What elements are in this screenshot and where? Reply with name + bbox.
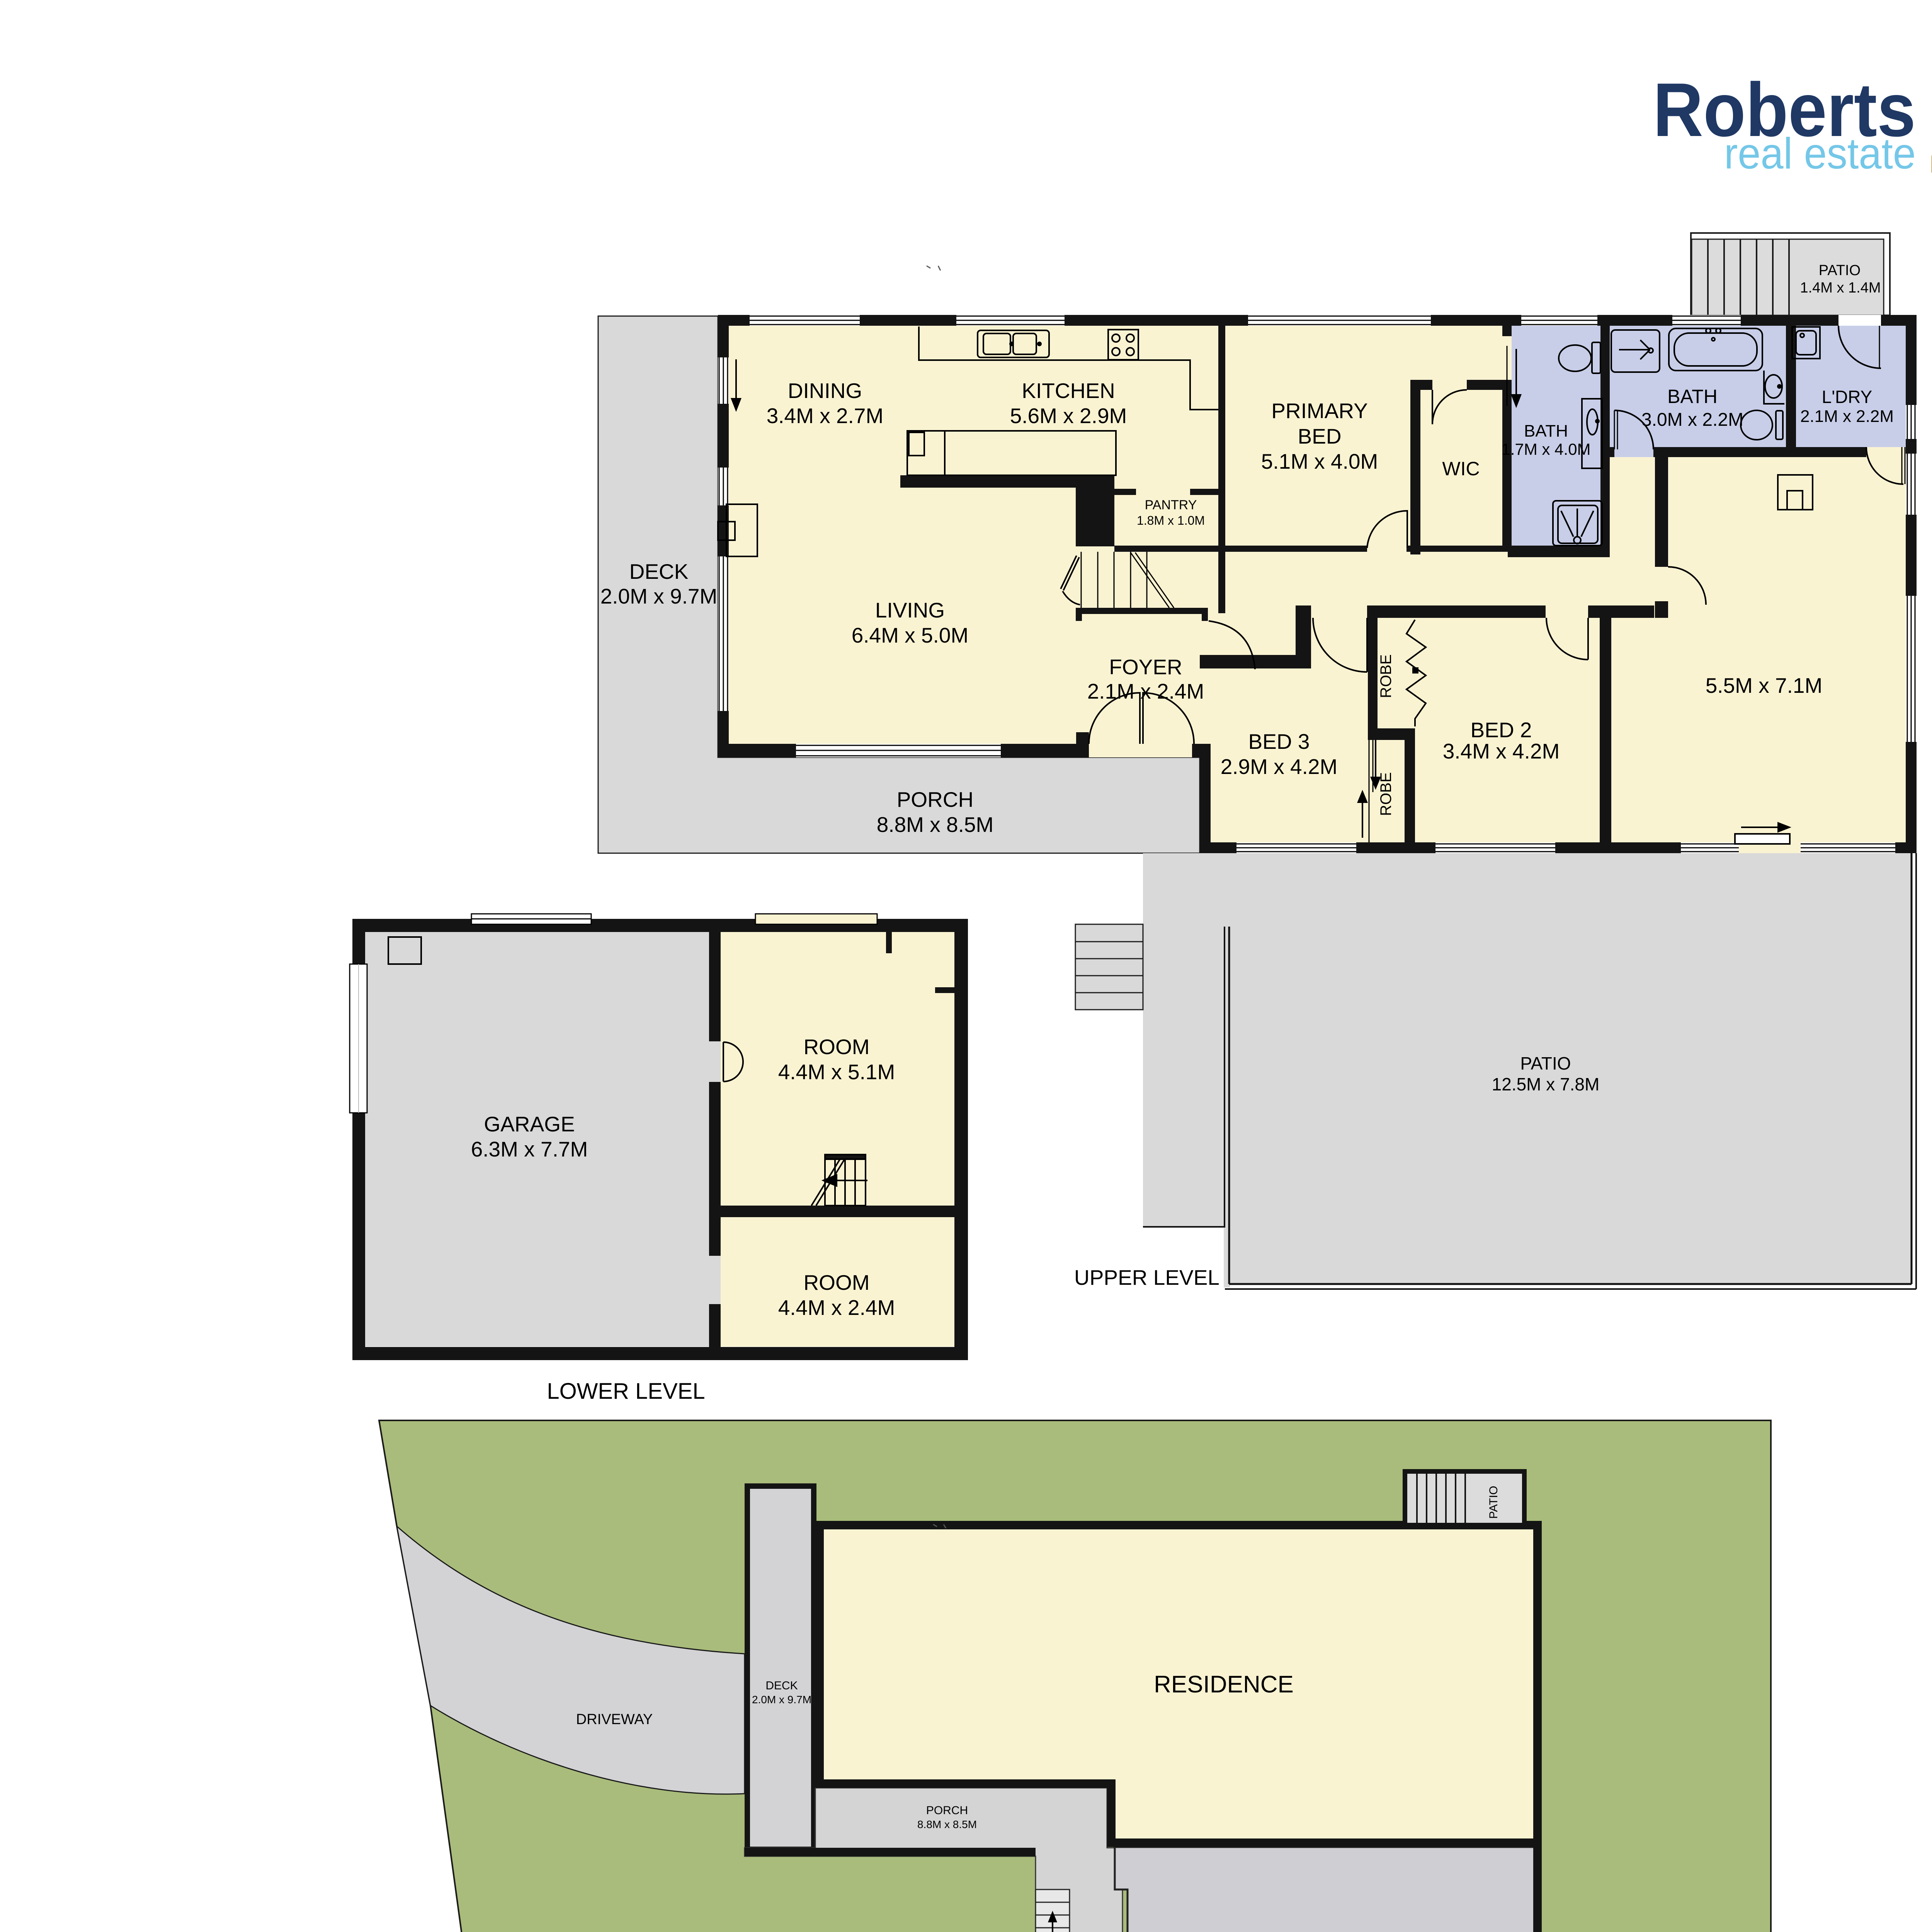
- svg-text:2.0M x 9.7M: 2.0M x 9.7M: [600, 584, 718, 608]
- svg-text:8.8M x 8.5M: 8.8M x 8.5M: [917, 1818, 977, 1830]
- svg-text:DINING: DINING: [788, 379, 862, 403]
- svg-text:2.9M x 4.2M: 2.9M x 4.2M: [1221, 755, 1338, 779]
- svg-text:PORCH: PORCH: [926, 1804, 968, 1817]
- svg-text:DRIVEWAY: DRIVEWAY: [576, 1711, 653, 1728]
- svg-text:160: 160: [1927, 63, 1932, 195]
- svg-text:DECK: DECK: [765, 1679, 798, 1692]
- svg-text:ROBE: ROBE: [1378, 654, 1395, 698]
- svg-text:2.1M x 2.2M: 2.1M x 2.2M: [1800, 407, 1894, 426]
- svg-text:L'DRY: L'DRY: [1822, 387, 1872, 407]
- svg-text:5.5M x 7.1M: 5.5M x 7.1M: [1706, 673, 1823, 697]
- svg-text:PATIO: PATIO: [1819, 262, 1861, 279]
- svg-text:LOWER LEVEL: LOWER LEVEL: [547, 1379, 705, 1404]
- svg-text:FOYER: FOYER: [1109, 655, 1182, 679]
- svg-text:3.4M x 2.7M: 3.4M x 2.7M: [767, 404, 884, 428]
- svg-text:4.4M x 2.4M: 4.4M x 2.4M: [778, 1296, 895, 1320]
- svg-text:BED 2: BED 2: [1471, 718, 1532, 742]
- svg-text:WIC: WIC: [1442, 458, 1480, 480]
- svg-text:RESIDENCE: RESIDENCE: [1154, 1671, 1294, 1698]
- svg-text:6.4M x 5.0M: 6.4M x 5.0M: [852, 623, 969, 647]
- svg-text:3.4M x 4.2M: 3.4M x 4.2M: [1443, 739, 1560, 763]
- svg-text:ROOM: ROOM: [803, 1270, 869, 1294]
- svg-text:5.1M x 4.0M: 5.1M x 4.0M: [1261, 449, 1378, 473]
- svg-text:PANTRY: PANTRY: [1145, 498, 1197, 512]
- svg-text:UPPER LEVEL: UPPER LEVEL: [1074, 1265, 1219, 1289]
- svg-text:12.5M x 7.8M: 12.5M x 7.8M: [1492, 1074, 1600, 1094]
- svg-text:1.8M x 1.0M: 1.8M x 1.0M: [1137, 514, 1205, 527]
- svg-text:1.4M x 1.4M: 1.4M x 1.4M: [1800, 280, 1881, 296]
- svg-text:GARAGE: GARAGE: [484, 1112, 575, 1136]
- svg-text:4.4M x 5.1M: 4.4M x 5.1M: [778, 1060, 895, 1084]
- svg-text:real estate: real estate: [1724, 129, 1916, 178]
- svg-text:5.6M x 2.9M: 5.6M x 2.9M: [1010, 404, 1127, 428]
- svg-text:1.7M x 4.0M: 1.7M x 4.0M: [1501, 440, 1590, 458]
- svg-text:ROBE: ROBE: [1378, 772, 1395, 816]
- svg-text:DECK: DECK: [629, 560, 689, 583]
- svg-text:BED 3: BED 3: [1248, 730, 1310, 753]
- svg-text:8.8M x 8.5M: 8.8M x 8.5M: [877, 813, 994, 837]
- svg-text:PATIO: PATIO: [1487, 1486, 1500, 1519]
- svg-text:2.1M x 2.4M: 2.1M x 2.4M: [1087, 679, 1204, 703]
- svg-text:PORCH: PORCH: [897, 787, 974, 811]
- svg-text:3.0M x 2.2M: 3.0M x 2.2M: [1641, 410, 1743, 430]
- svg-text:BATH: BATH: [1524, 422, 1568, 440]
- svg-text:BATH: BATH: [1667, 386, 1718, 407]
- svg-text:PRIMARY: PRIMARY: [1271, 399, 1368, 423]
- svg-text:PATIO: PATIO: [1520, 1053, 1571, 1073]
- svg-text:2.0M x 9.7M: 2.0M x 9.7M: [752, 1694, 811, 1706]
- svg-text:KITCHEN: KITCHEN: [1022, 379, 1115, 403]
- svg-text:LIVING: LIVING: [875, 598, 945, 622]
- svg-text:6.3M x 7.7M: 6.3M x 7.7M: [471, 1137, 588, 1161]
- svg-text:BED: BED: [1298, 424, 1341, 448]
- svg-text:ROOM: ROOM: [803, 1035, 869, 1059]
